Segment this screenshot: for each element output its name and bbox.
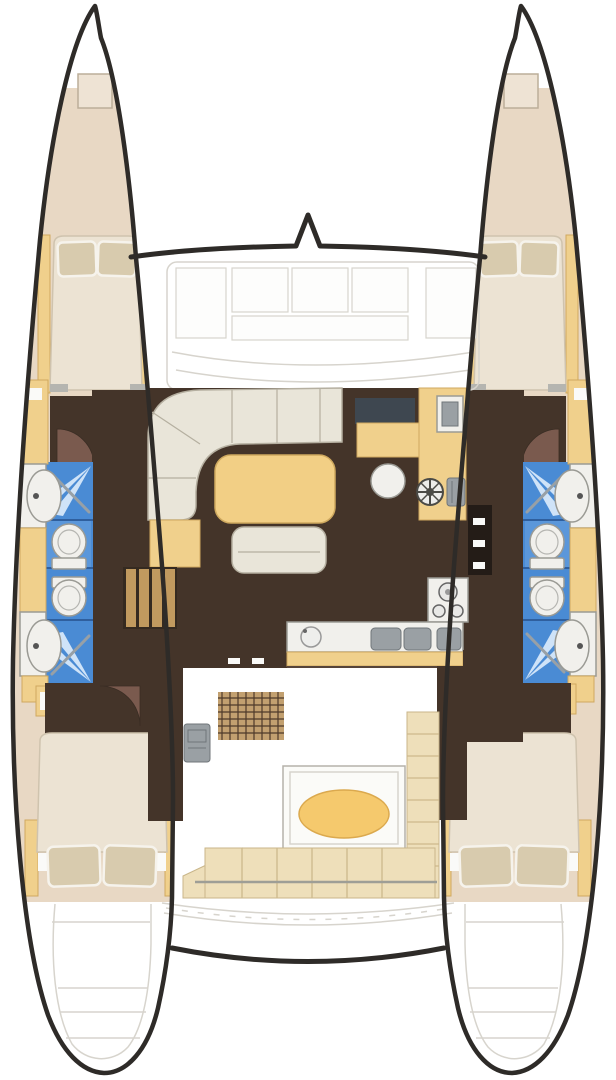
nav-chart-table: [355, 398, 415, 424]
faucet: [33, 643, 39, 649]
cockpit-grate: [218, 692, 284, 740]
forward-crossbeam: [131, 215, 485, 257]
washbasin: [555, 620, 589, 672]
coachroof-curve: [176, 370, 470, 382]
starboard-cockpit-passage: [437, 666, 523, 742]
washbasin: [27, 620, 61, 672]
catamaran-floor-plan: [0, 0, 616, 1080]
foredeck-panel: [232, 316, 408, 340]
threshold-mark: [252, 658, 264, 664]
cockpit-table: [283, 766, 405, 850]
foredeck-hatch: [176, 268, 226, 338]
counter-front: [287, 652, 463, 666]
square-sink: [371, 628, 401, 650]
foredeck-window: [232, 268, 288, 312]
pillow: [57, 241, 96, 276]
stove: [428, 578, 468, 622]
cabinet: [570, 528, 596, 612]
floor-plan-canvas: [0, 0, 616, 1080]
helm-box: [184, 724, 210, 762]
port-corridor: [92, 390, 150, 688]
starboard-galley-wall: [463, 650, 523, 666]
berth-rail: [578, 820, 591, 896]
pillow: [103, 845, 156, 887]
aft-deck: [162, 903, 454, 925]
berth-rail: [25, 820, 38, 896]
salon-table: [215, 455, 335, 523]
berth-corner: [548, 384, 566, 392]
washbasin: [27, 470, 61, 522]
threshold-mark: [228, 658, 240, 664]
cabinet: [20, 528, 46, 612]
starboard-bow-locker-hatch: [504, 74, 538, 108]
foredeck-window: [292, 268, 348, 312]
faucet: [303, 629, 307, 633]
faucet: [577, 643, 583, 649]
foredeck-hatch: [426, 268, 476, 338]
foredeck-coachroof: [167, 262, 479, 390]
round-stool: [371, 464, 405, 498]
table-top: [299, 790, 389, 838]
starboard-companionway-steps: [468, 505, 492, 575]
port-bow-locker-hatch: [78, 74, 112, 108]
double-berth: [449, 733, 579, 852]
salon-bench: [232, 527, 326, 573]
foredeck-window: [352, 268, 408, 312]
pillow: [515, 845, 568, 887]
toilet-tank: [52, 558, 86, 569]
square-sink: [404, 628, 431, 650]
faucet: [33, 493, 39, 499]
aft-crossbeam: [172, 948, 444, 962]
galley-counter-aft: [287, 622, 463, 667]
cockpit: [183, 692, 439, 898]
port-companionway-steps: [123, 567, 177, 629]
port-cockpit-wall: [148, 661, 183, 821]
pillow: [459, 845, 512, 887]
washbasin: [555, 470, 589, 522]
faucet: [577, 493, 583, 499]
pillow: [519, 241, 558, 276]
pillow: [47, 845, 100, 887]
toilet-tank: [530, 558, 564, 569]
berth-corner: [50, 384, 68, 392]
coachroof-curve: [172, 352, 474, 365]
galley-winch-icon: [417, 479, 443, 505]
double-berth: [37, 733, 167, 852]
appliance-door: [442, 402, 458, 426]
